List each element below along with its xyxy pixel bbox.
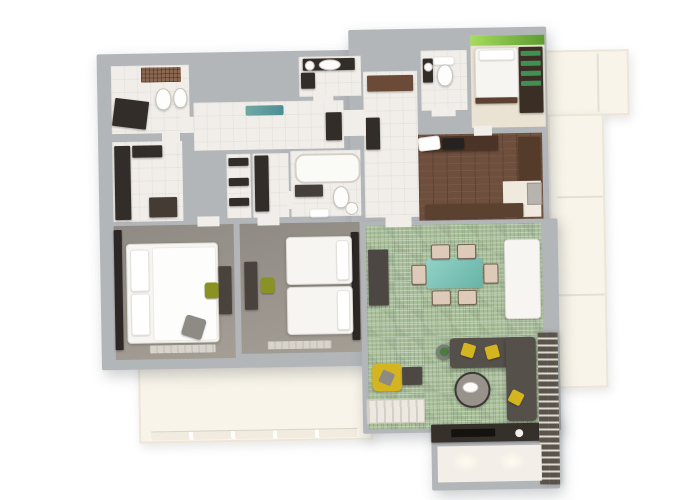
pillow bbox=[336, 240, 350, 280]
green-shelf bbox=[521, 71, 541, 76]
pillow bbox=[479, 49, 515, 61]
door-opening bbox=[313, 94, 333, 102]
door-opening bbox=[287, 191, 293, 209]
corridor-rug bbox=[245, 105, 283, 116]
pillow bbox=[131, 294, 151, 336]
green-shelf bbox=[521, 61, 541, 66]
door-opening bbox=[197, 216, 219, 226]
washing-machine bbox=[301, 73, 315, 89]
window-bench bbox=[150, 344, 216, 353]
corner-sofa bbox=[506, 337, 537, 422]
dining-chair bbox=[431, 244, 450, 259]
bathroom-vanity bbox=[112, 98, 149, 130]
bath-counter bbox=[295, 184, 323, 196]
dining-chair bbox=[458, 290, 477, 305]
green-shelf bbox=[521, 81, 541, 86]
door-opening bbox=[432, 108, 456, 116]
door-opening bbox=[162, 131, 180, 143]
toilet bbox=[155, 88, 171, 110]
bidet bbox=[173, 88, 187, 108]
door-opening bbox=[182, 117, 194, 133]
pillow bbox=[337, 290, 351, 330]
corridor-console bbox=[326, 112, 342, 140]
bed-foot-bench bbox=[475, 97, 517, 104]
pillow bbox=[130, 250, 150, 292]
desk bbox=[218, 266, 232, 314]
wardrobe bbox=[114, 146, 131, 220]
shower-tray bbox=[141, 67, 181, 83]
white-sofa bbox=[504, 239, 541, 320]
shelf bbox=[228, 158, 248, 166]
green-shelf bbox=[521, 51, 541, 56]
shelf bbox=[229, 178, 249, 186]
fridge bbox=[527, 183, 542, 205]
wardrobe-shelf bbox=[132, 145, 162, 158]
bath-mat bbox=[309, 208, 329, 217]
tall-cabinet bbox=[254, 155, 269, 211]
window-bench bbox=[268, 340, 332, 349]
shelf bbox=[229, 198, 249, 206]
green-accent-wall bbox=[470, 35, 544, 46]
desk-chair bbox=[260, 277, 274, 293]
apartment-floor-plan bbox=[0, 0, 700, 500]
door-opening bbox=[257, 215, 279, 225]
dining-chair bbox=[483, 263, 498, 283]
side-table bbox=[402, 367, 422, 385]
dining-chair bbox=[432, 290, 451, 305]
balcony-right-top bbox=[545, 49, 630, 116]
desk-chair bbox=[205, 282, 219, 298]
desk bbox=[244, 262, 258, 310]
sideboard bbox=[368, 249, 389, 305]
floor-plan-canvas bbox=[0, 0, 700, 500]
cooktop bbox=[442, 138, 464, 149]
coat-wardrobe bbox=[366, 117, 381, 149]
plant bbox=[440, 347, 449, 356]
sink-round bbox=[424, 63, 433, 72]
radiator bbox=[367, 399, 425, 424]
door-opening bbox=[474, 126, 492, 136]
dining-table bbox=[426, 258, 483, 289]
door-opening bbox=[344, 110, 366, 136]
counter-corner bbox=[417, 135, 441, 152]
bathtub bbox=[294, 153, 361, 184]
door-opening bbox=[385, 215, 411, 227]
tv bbox=[451, 428, 495, 437]
dining-chair bbox=[457, 244, 476, 259]
closet-dresser bbox=[149, 197, 177, 217]
kitchen-bar bbox=[425, 203, 523, 219]
dining-chair bbox=[411, 265, 426, 285]
hall-cabinet bbox=[367, 75, 413, 92]
toilet bbox=[437, 64, 453, 86]
